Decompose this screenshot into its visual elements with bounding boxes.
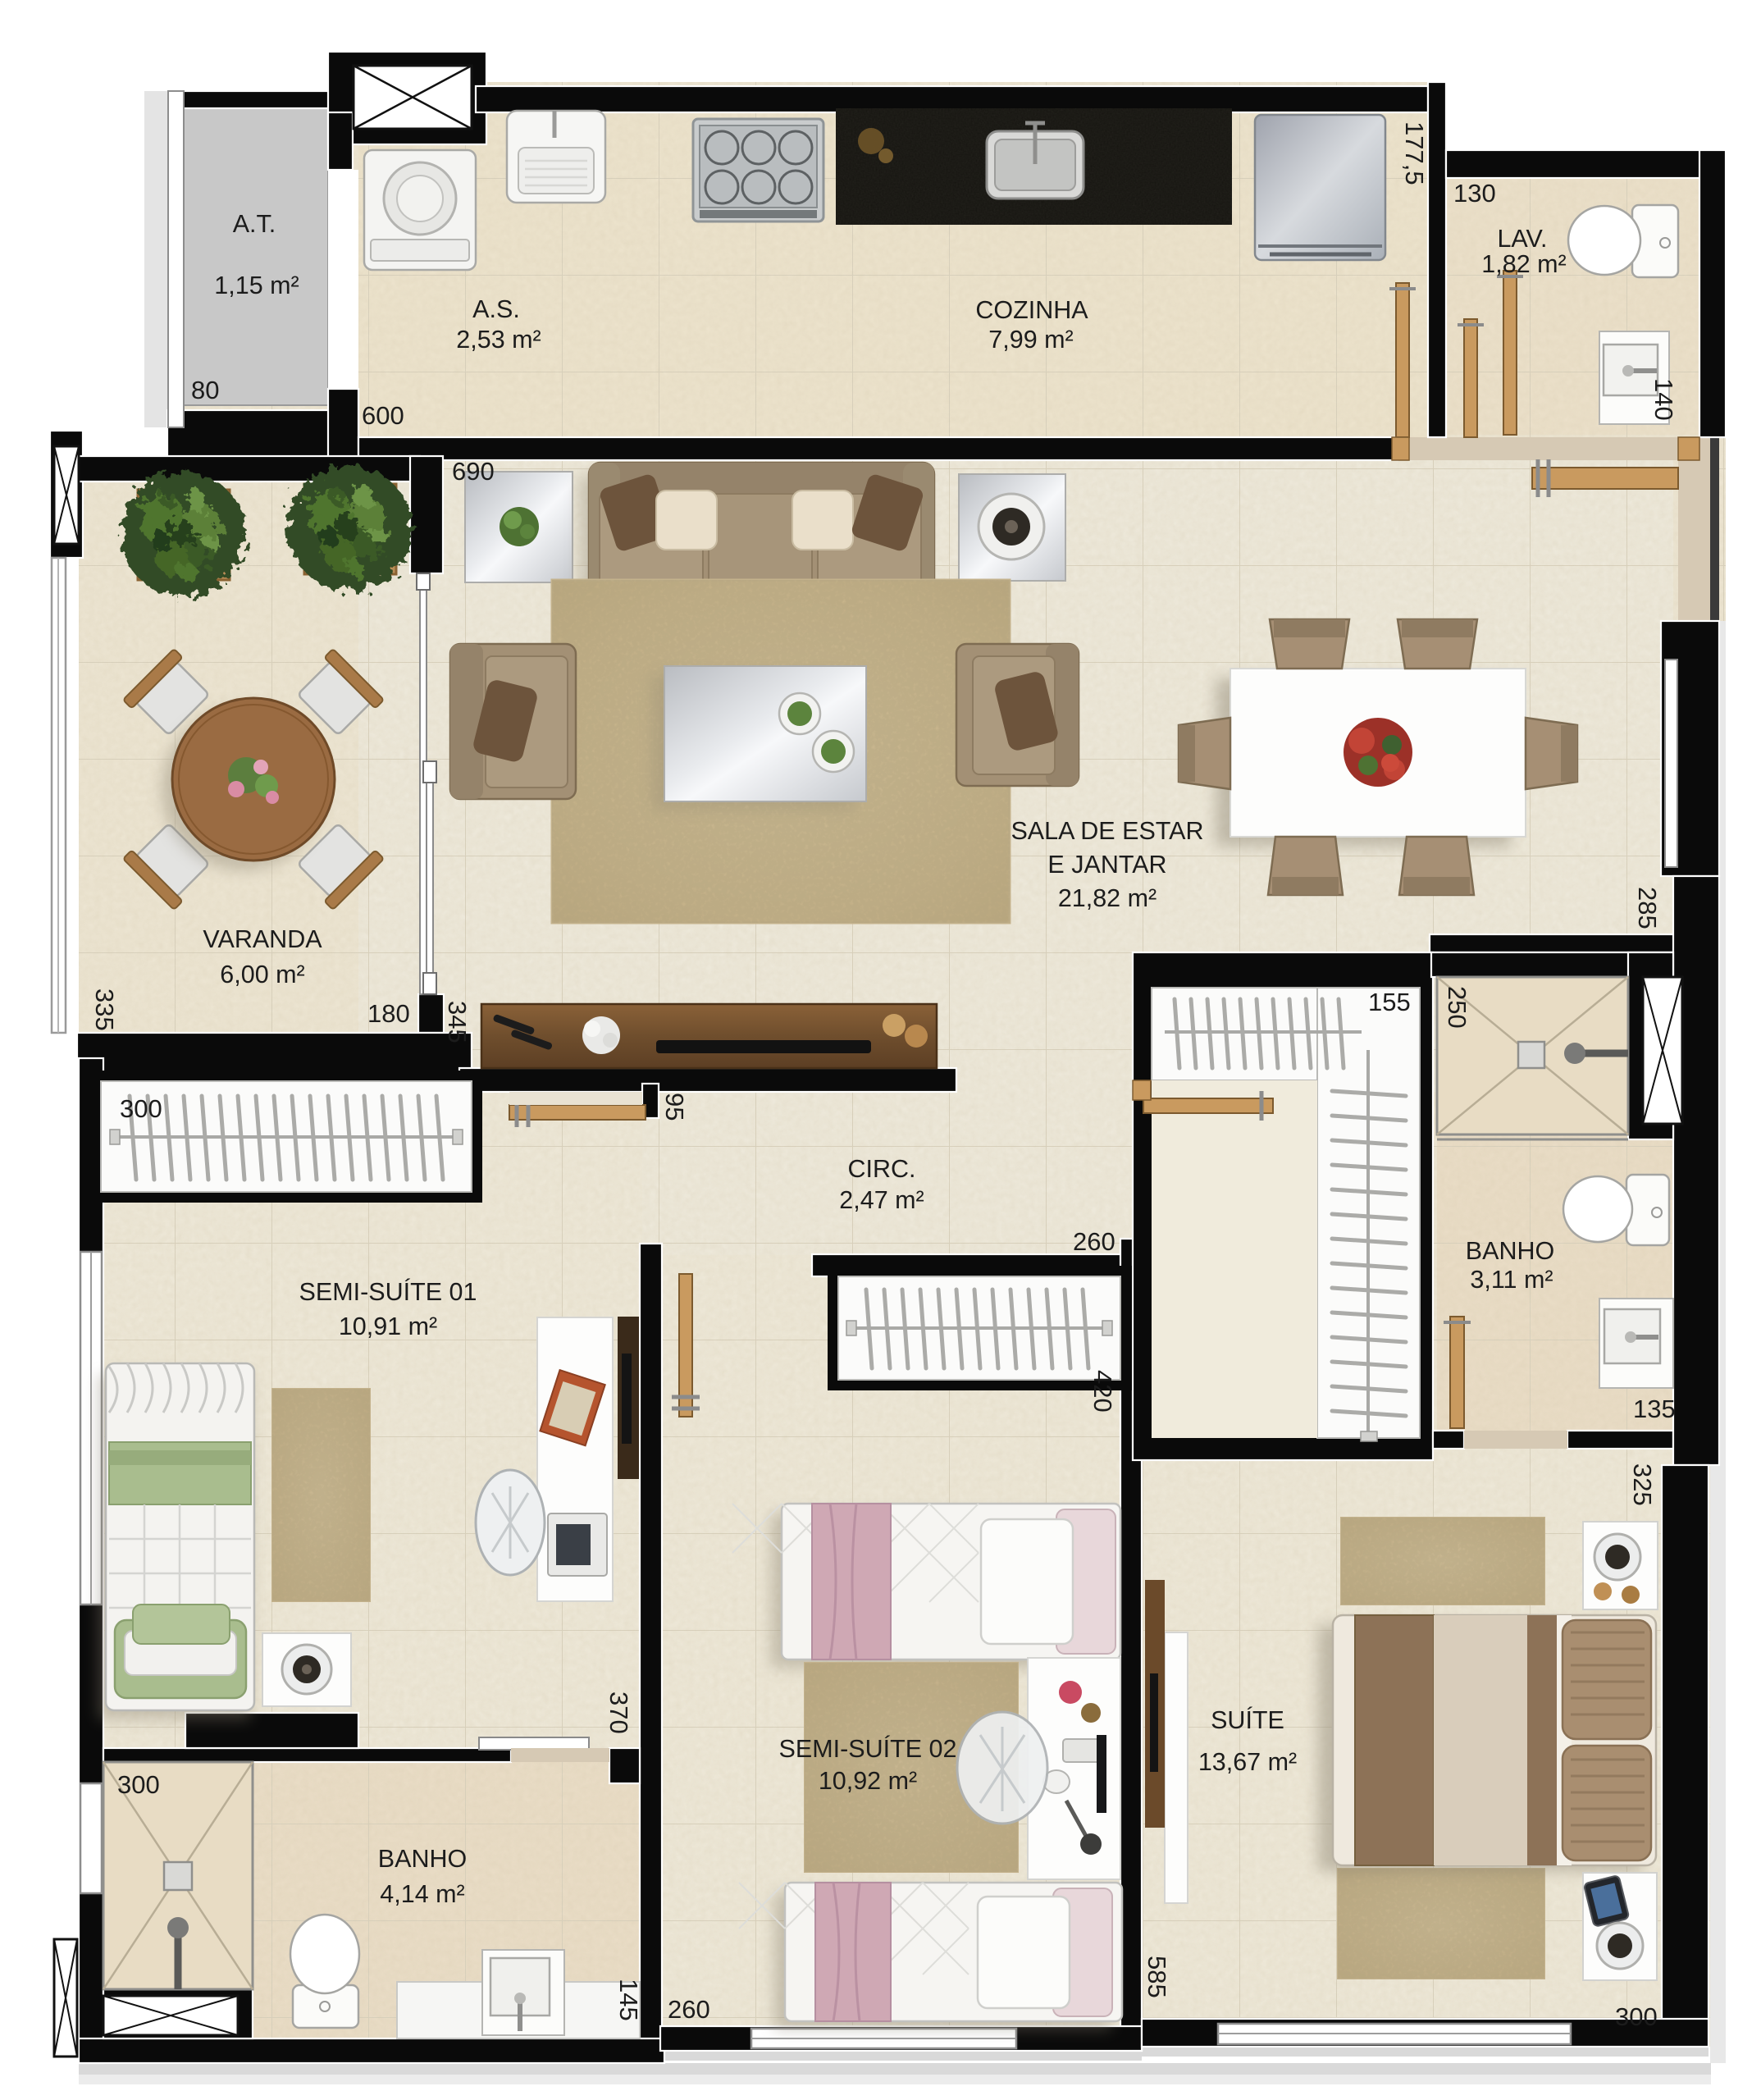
svg-text:260: 260 (1073, 1227, 1115, 1256)
svg-text:6,00 m²: 6,00 m² (220, 961, 304, 988)
svg-text:300: 300 (1615, 2002, 1658, 2031)
svg-text:LAV.: LAV. (1497, 225, 1547, 253)
svg-text:180: 180 (367, 999, 410, 1028)
svg-text:VARANDA: VARANDA (203, 925, 322, 953)
svg-text:325: 325 (1628, 1463, 1657, 1506)
svg-text:21,82 m²: 21,82 m² (1058, 884, 1157, 912)
svg-text:600: 600 (362, 401, 404, 430)
svg-text:SALA DE ESTAR: SALA DE ESTAR (1011, 817, 1203, 845)
svg-text:10,91 m²: 10,91 m² (339, 1312, 437, 1340)
svg-text:BANHO: BANHO (378, 1845, 467, 1873)
svg-text:A.S.: A.S. (472, 295, 520, 323)
svg-text:260: 260 (668, 1995, 710, 2024)
svg-text:10,92 m²: 10,92 m² (819, 1767, 917, 1795)
svg-text:13,67 m²: 13,67 m² (1198, 1748, 1297, 1776)
svg-text:285: 285 (1633, 887, 1662, 929)
svg-text:335: 335 (90, 988, 119, 1031)
svg-text:95: 95 (660, 1093, 689, 1121)
svg-text:420: 420 (1088, 1370, 1117, 1413)
svg-text:690: 690 (452, 457, 495, 486)
svg-text:135: 135 (1633, 1395, 1676, 1423)
svg-text:250: 250 (1443, 986, 1471, 1029)
svg-text:3,11 m²: 3,11 m² (1470, 1266, 1553, 1294)
svg-text:155: 155 (1368, 988, 1411, 1016)
svg-text:345: 345 (443, 1001, 472, 1043)
svg-text:145: 145 (614, 1979, 643, 2021)
svg-text:177,5: 177,5 (1400, 121, 1429, 185)
svg-text:E JANTAR: E JANTAR (1047, 851, 1166, 879)
svg-text:130: 130 (1453, 179, 1496, 208)
svg-text:80: 80 (191, 376, 219, 404)
svg-text:CIRC.: CIRC. (847, 1155, 915, 1183)
svg-text:140: 140 (1649, 378, 1678, 421)
svg-text:2,53 m²: 2,53 m² (456, 326, 541, 354)
svg-text:370: 370 (604, 1691, 633, 1734)
svg-text:4,14 m²: 4,14 m² (380, 1880, 464, 1908)
svg-text:585: 585 (1143, 1956, 1171, 1998)
svg-text:COZINHA: COZINHA (975, 296, 1088, 324)
svg-text:7,99 m²: 7,99 m² (988, 326, 1073, 354)
svg-text:SUÍTE: SUÍTE (1211, 1705, 1284, 1734)
svg-text:300: 300 (117, 1770, 160, 1799)
svg-text:SEMI-SUÍTE 01: SEMI-SUÍTE 01 (299, 1277, 477, 1306)
svg-text:1,15 m²: 1,15 m² (214, 272, 299, 299)
svg-text:BANHO: BANHO (1466, 1237, 1554, 1265)
svg-text:SEMI-SUÍTE 02: SEMI-SUÍTE 02 (779, 1734, 957, 1763)
svg-text:2,47 m²: 2,47 m² (839, 1186, 924, 1214)
svg-text:300: 300 (120, 1094, 162, 1123)
svg-text:A.T.: A.T. (233, 210, 276, 238)
svg-text:1,82 m²: 1,82 m² (1481, 250, 1566, 278)
